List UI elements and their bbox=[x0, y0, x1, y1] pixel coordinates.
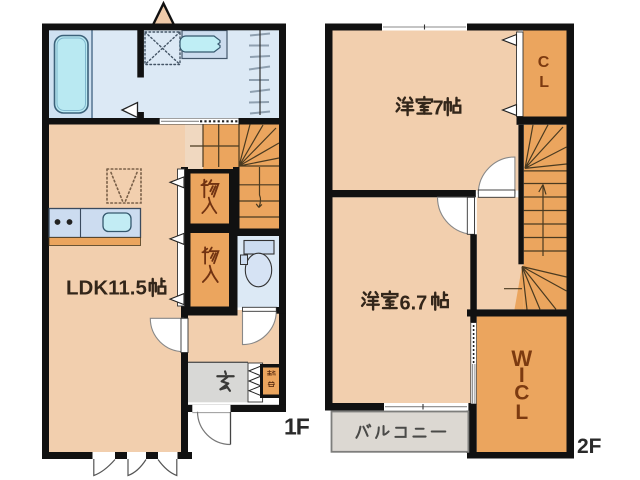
svg-text:L: L bbox=[515, 401, 528, 424]
svg-text:C: C bbox=[538, 54, 550, 71]
svg-text:2F: 2F bbox=[577, 435, 602, 458]
svg-text:7: 7 bbox=[433, 98, 444, 120]
svg-text:1F: 1F bbox=[284, 414, 310, 440]
svg-text:L: L bbox=[539, 74, 549, 91]
svg-text:LDK11.5: LDK11.5 bbox=[66, 277, 147, 300]
svg-text:6.7: 6.7 bbox=[400, 292, 428, 314]
